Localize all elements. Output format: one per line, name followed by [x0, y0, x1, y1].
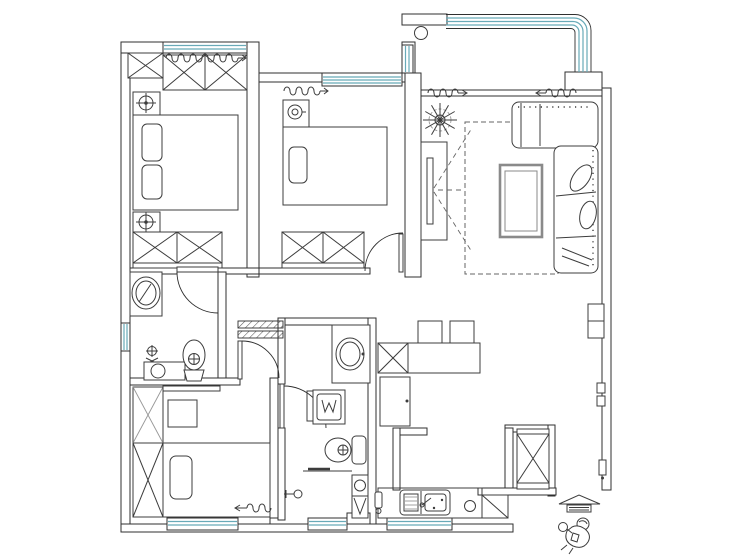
washing-machine-icon [307, 390, 345, 424]
double-bed-icon [283, 127, 387, 205]
refrigerator-icon [380, 377, 410, 426]
left-wall-upper [121, 42, 130, 323]
toilet-icon [325, 436, 366, 464]
plant-icon [423, 103, 457, 137]
toilet-icon [183, 340, 205, 381]
vanity-basin-icon [130, 272, 162, 316]
bedroom3-right-wall [270, 378, 278, 518]
corner-cabinet-icon [482, 495, 508, 518]
vanity-basin-icon [332, 325, 370, 383]
pillow-icon [142, 165, 162, 199]
bathroom1-window [121, 323, 130, 351]
tv-icon [427, 158, 433, 224]
left-wall-lower [121, 351, 130, 532]
top-wall-bedroom2 [259, 73, 322, 82]
chair-icon [450, 321, 474, 346]
bedroom2-top-window [322, 73, 402, 86]
bedroom1-right-wall [247, 42, 259, 277]
wall-shelf-icon [588, 304, 604, 338]
balcony-right-block [565, 72, 602, 92]
bathroom-1 [130, 272, 205, 381]
shower-partition [303, 469, 352, 471]
door-swing-icon [365, 233, 403, 272]
bathroom-2 [284, 325, 370, 518]
tv-cabinet-icon [421, 128, 472, 252]
wardrobe-icon [133, 232, 222, 268]
burner-icon [465, 501, 476, 512]
entry [517, 304, 606, 554]
person-figure-icon [559, 518, 590, 554]
kitchen-window [387, 518, 452, 530]
nightstand-lamp-icon [133, 92, 160, 115]
right-wall [602, 88, 611, 490]
desk-icon [163, 386, 220, 391]
double-bed-icon [133, 115, 238, 210]
double-sink-icon [400, 490, 450, 515]
balcony-left-block [402, 14, 447, 25]
cased-opening-icon [238, 321, 283, 338]
double-bed-icon [163, 443, 270, 517]
balcony-left-window [402, 45, 413, 73]
floor-plan-canvas [0, 0, 740, 555]
steps-icon [567, 505, 591, 512]
mop-sink-icon [144, 345, 185, 380]
entrance-canopy-icon [559, 495, 600, 512]
shower-head-icon [284, 490, 302, 498]
bedroom3-window [167, 518, 238, 530]
curtain-icon [284, 87, 320, 95]
living-balcony-track [421, 90, 602, 96]
balcony [415, 27, 428, 40]
nightstand-lamp-icon [133, 212, 160, 233]
bathroom2-left-wall-b [278, 428, 285, 520]
door-swing-icon [177, 267, 218, 313]
floor-plan-page [0, 0, 740, 555]
bedroom-3 [133, 386, 271, 517]
dining-area [378, 321, 480, 426]
bathroom2-window [308, 518, 347, 530]
pillow-icon [289, 147, 307, 183]
chair-icon [168, 400, 197, 427]
sliding-wardrobe-icon [128, 53, 247, 90]
wardrobe-icon [133, 387, 163, 517]
balcony-curved-window [446, 15, 591, 73]
column-icon [415, 27, 428, 40]
wardrobe-icon [282, 232, 364, 268]
chair-icon [418, 321, 442, 346]
kitchen-right-wall [505, 428, 513, 488]
kitchen-stub-wall-v [393, 428, 400, 490]
storage-column-icon [352, 475, 368, 518]
nightstand-lamp-icon [283, 100, 309, 127]
dining-table-icon [408, 343, 480, 373]
pillow-icon [170, 456, 192, 499]
bedroom3-door-swing-icon [238, 341, 279, 379]
pillow-icon [142, 124, 162, 161]
bedroom-2 [282, 87, 403, 272]
storage-cabinet-icon [378, 343, 408, 373]
bedroom2-south-wall [259, 268, 370, 274]
coffee-table-icon [500, 165, 542, 237]
bathroom1-right-wall [218, 272, 226, 385]
shoe-cabinet-icon [517, 429, 549, 489]
tv-wall [405, 73, 421, 277]
living-room [421, 89, 599, 274]
bathroom2-north-wall [285, 318, 376, 325]
bedroom1-top-window [163, 42, 247, 53]
